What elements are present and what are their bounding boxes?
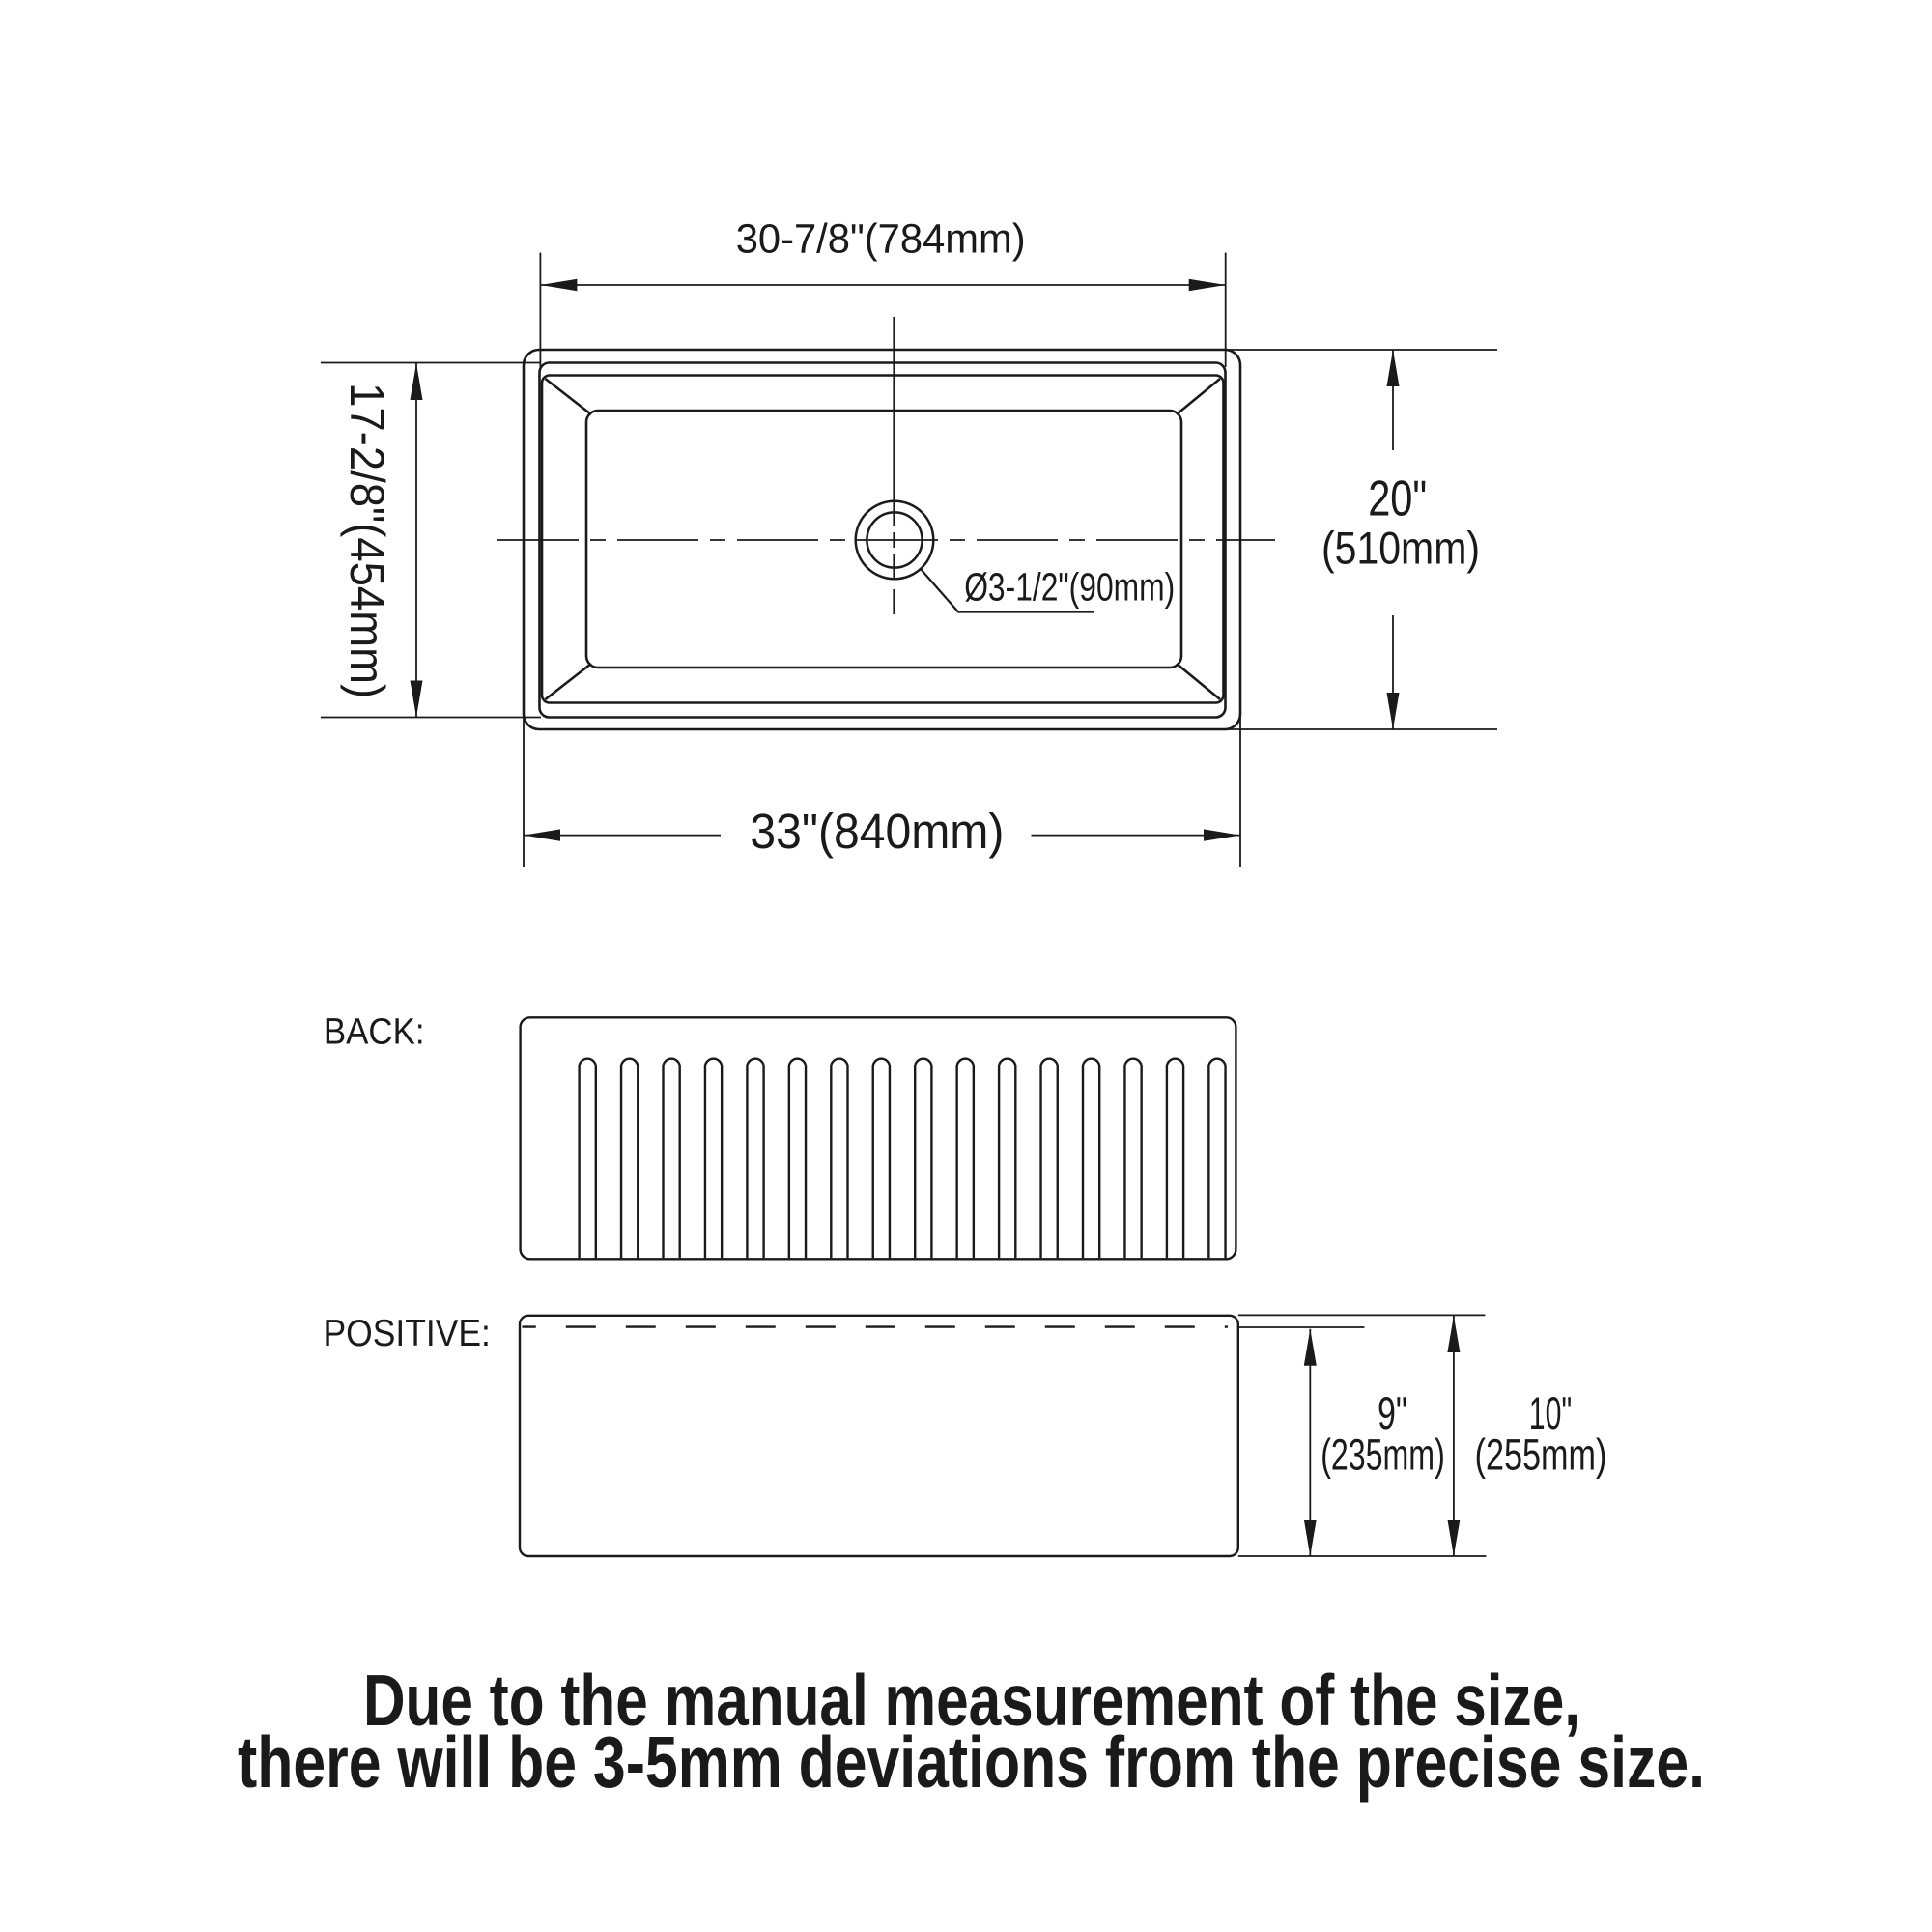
svg-text:20": 20" (1368, 471, 1427, 527)
svg-text:BACK:: BACK: (324, 1012, 425, 1053)
svg-text:17-2/8"(454mm): 17-2/8"(454mm) (340, 383, 394, 698)
svg-text:(255mm): (255mm) (1475, 1431, 1607, 1480)
svg-text:there will be 3-5mm deviations: there will be 3-5mm deviations from the … (238, 1721, 1705, 1803)
svg-text:Ø3-1/2"(90mm): Ø3-1/2"(90mm) (964, 565, 1175, 610)
svg-text:POSITIVE:: POSITIVE: (324, 1313, 491, 1354)
svg-text:(235mm): (235mm) (1321, 1431, 1445, 1480)
svg-text:30-7/8"(784mm): 30-7/8"(784mm) (736, 216, 1026, 263)
svg-text:(510mm): (510mm) (1321, 522, 1480, 573)
svg-text:33"(840mm): 33"(840mm) (750, 804, 1004, 859)
